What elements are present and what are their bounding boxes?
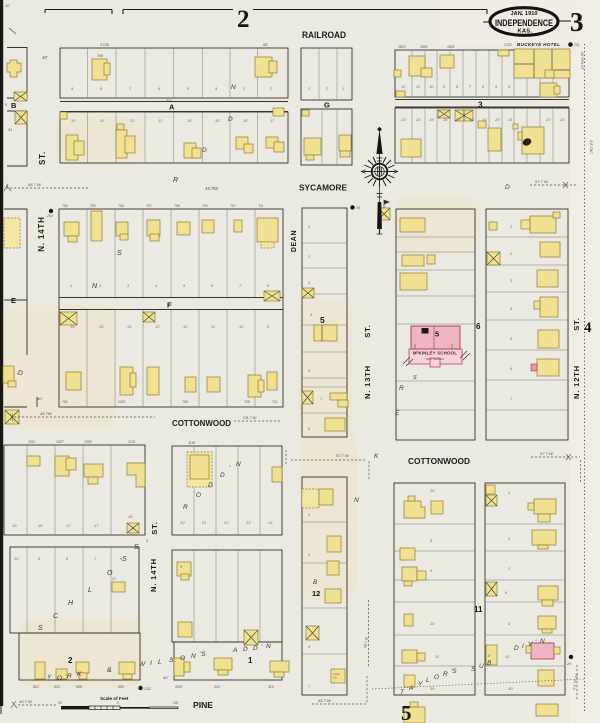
svg-text:13: 13 [401,117,406,122]
svg-text:ST.: ST. [150,521,159,534]
svg-text:R: R [173,177,178,184]
svg-text:D: D [228,116,233,123]
svg-text:6: 6 [5,103,7,107]
svg-text:R: R [183,504,188,511]
svg-text:'S: 'S [200,651,206,658]
svg-text:6: 6 [476,322,481,331]
svg-text:314: 314 [214,685,220,689]
svg-text:310: 310 [268,685,274,689]
svg-text:700: 700 [62,204,68,208]
svg-text:1726: 1726 [100,42,110,47]
svg-text:704: 704 [118,204,124,208]
svg-text:D: D [220,472,225,479]
svg-text:30: 30 [508,686,513,691]
svg-text:1100: 1100 [175,685,182,689]
svg-text:16: 16 [243,118,248,123]
svg-text:13: 13 [155,324,160,329]
svg-text:1: 1 [70,283,72,288]
svg-text:24: 24 [566,662,571,666]
svg-text:41: 41 [8,128,12,132]
svg-text:23: 23 [245,520,251,525]
svg-text:18: 18 [38,523,43,528]
svg-text:21: 21 [507,117,512,122]
svg-text:KAS.: KAS. [518,29,533,35]
svg-text:2K 9TH ST: 2K 9TH ST [580,51,584,71]
svg-text:L: L [158,659,162,666]
svg-text:15: 15 [99,324,104,329]
svg-text:11: 11 [100,118,104,123]
svg-text:709: 709 [97,54,103,58]
svg-text:11: 11 [416,84,420,89]
svg-text:1802: 1802 [447,45,455,49]
svg-text:5: 5 [435,330,439,339]
svg-text:D: D [208,482,213,489]
svg-text:24: 24 [267,520,273,525]
svg-text:11: 11 [211,324,215,329]
svg-text:1221: 1221 [128,440,136,444]
svg-text:17: 17 [456,117,461,122]
svg-text:A: A [232,647,237,654]
svg-text:2: 2 [68,656,73,665]
svg-text:705: 705 [182,400,188,404]
svg-text:L: L [426,677,430,684]
svg-text:10: 10 [239,324,244,329]
svg-text:S: S [413,375,417,381]
svg-text:N: N [540,638,545,645]
svg-text:O: O [180,655,185,662]
svg-text:S: S [38,625,43,632]
svg-text:900: 900 [118,685,124,689]
svg-text:C8.7 W.: C8.7 W. [243,415,258,420]
svg-text:45.7 W.: 45.7 W. [318,698,332,703]
svg-text:10: 10 [429,84,434,89]
svg-text:D: D [505,184,510,191]
svg-text:22: 22 [223,520,229,525]
svg-text:40': 40' [37,396,42,401]
svg-text:1311: 1311 [144,687,151,691]
svg-text:702: 702 [90,204,96,208]
svg-text:4: 4 [584,320,592,336]
svg-text:COAL: COAL [333,672,341,676]
svg-text:B: B [313,579,318,586]
svg-text:17: 17 [270,118,275,123]
svg-text:BR'K VENEER: BR'K VENEER [426,357,443,361]
svg-text:0: 0 [117,701,119,705]
svg-text:10: 10 [71,118,76,123]
svg-text:E: E [395,410,400,417]
svg-text:12: 12 [130,118,135,123]
svg-text:17: 17 [94,523,99,528]
svg-text:21: 21 [201,520,206,525]
svg-text:1: 1 [248,656,253,665]
svg-text:10: 10 [430,488,435,493]
svg-text:10: 10 [430,621,435,626]
svg-text:S: S [471,666,476,673]
svg-text:40': 40' [166,98,171,103]
svg-text:ST.: ST. [572,317,581,330]
svg-text:36: 36 [356,206,360,210]
svg-text:58: 58 [263,42,268,47]
svg-text:908: 908 [76,685,82,689]
svg-text:57.7 W.: 57.7 W. [336,453,350,458]
svg-text:14: 14 [127,324,132,329]
svg-text:57.7 W.: 57.7 W. [540,451,554,456]
svg-text:19: 19 [12,523,17,528]
svg-text:D: D [514,645,519,652]
svg-text:N: N [231,84,236,91]
svg-text:10: 10 [14,556,19,561]
svg-text:910: 910 [54,685,60,689]
svg-text:N: N [354,497,359,504]
svg-text:U: U [479,663,484,670]
svg-text:710: 710 [202,204,208,208]
svg-text:N: N [191,653,196,660]
svg-text:D: D [243,646,248,653]
svg-text:100: 100 [173,701,179,705]
svg-text:1810: 1810 [398,45,406,49]
svg-text:711: 711 [258,204,264,208]
svg-text:14: 14 [416,117,421,122]
svg-text:R: R [67,673,72,680]
svg-text:R: R [443,671,448,678]
svg-text:&: & [107,667,112,674]
svg-text:707: 707 [146,204,152,208]
svg-text:ST.: ST. [363,324,372,337]
svg-text:1115: 1115 [188,441,195,445]
svg-text:45.756: 45.756 [205,186,218,191]
svg-text:COTTONWOOD: COTTONWOOD [408,456,470,466]
svg-text:45.7 W.: 45.7 W. [28,182,42,187]
svg-text:R: R [399,385,404,392]
svg-text:20: 20 [179,520,185,525]
svg-text:18: 18 [128,514,133,519]
svg-text:L: L [88,587,92,594]
svg-text:I: I [150,660,152,667]
svg-text:A: A [169,103,175,112]
svg-text:BUCKEYE HOTEL: BUCKEYE HOTEL [517,42,560,47]
svg-text:5: 5 [320,315,325,325]
svg-text:17: 17 [66,523,71,528]
svg-text:I: I [522,643,524,650]
svg-text:15: 15 [429,117,434,122]
svg-text:RAILROAD: RAILROAD [302,30,346,40]
svg-text:SYCAMORE: SYCAMORE [299,183,347,193]
svg-text:23: 23 [545,117,551,122]
svg-text:12: 12 [312,589,320,598]
svg-text:HO.: HO. [333,676,338,680]
svg-text:N: N [236,461,241,468]
svg-text:18: 18 [469,117,474,122]
svg-text:Y: Y [47,674,52,681]
svg-text:S: S [122,556,127,563]
svg-text:'S: 'S [451,668,457,675]
svg-text:PINE: PINE [193,700,213,710]
svg-text:COTTONWOOD: COTTONWOOD [172,418,231,428]
svg-text:O: O [196,492,201,499]
svg-text:11: 11 [435,654,439,659]
svg-text:K: K [374,453,379,460]
svg-text:D: D [253,645,258,652]
svg-text:20: 20 [494,117,500,122]
svg-text:57.7 W.: 57.7 W. [535,179,549,184]
svg-text:1307: 1307 [118,400,126,404]
svg-text:3: 3 [570,7,584,37]
svg-text:13: 13 [158,118,163,123]
svg-text:S: S [169,657,174,664]
svg-text:A: A [408,685,413,692]
svg-text:W: W [139,661,146,668]
svg-text:1303: 1303 [84,440,92,444]
svg-text:10: 10 [505,654,510,659]
svg-text:Scale of Feet: Scale of Feet [100,696,129,701]
svg-text:30: 30 [430,686,435,691]
svg-text:204: 204 [46,214,53,218]
svg-text:201: 201 [573,43,580,47]
svg-text:12: 12 [401,84,406,89]
svg-text:F: F [167,301,172,310]
svg-text:1720: 1720 [504,43,512,47]
svg-text:27: 27 [111,577,116,581]
svg-text:11: 11 [474,605,483,614]
svg-text:DEAN: DEAN [291,230,298,252]
svg-text:24: 24 [559,117,565,122]
svg-text:1307: 1307 [56,440,64,444]
svg-text:B: B [11,101,17,110]
svg-text:ST.: ST. [38,151,47,165]
svg-text:1: 1 [510,224,512,229]
svg-text:K: K [77,671,82,678]
svg-text:O: O [57,675,62,682]
svg-text:14: 14 [187,118,192,123]
svg-text:711: 711 [272,400,278,404]
svg-text:2: 2 [237,6,250,33]
svg-text:1: 1 [508,490,510,495]
svg-text:JAN. 1910: JAN. 1910 [511,11,538,17]
svg-text:1311: 1311 [28,440,35,444]
svg-text:N. 14TH: N. 14TH [149,558,158,592]
svg-text:1806: 1806 [420,45,428,49]
svg-text:48.7W: 48.7W [40,411,53,416]
svg-text:60': 60' [163,675,168,680]
svg-text:707: 707 [230,204,236,208]
svg-text:50: 50 [58,701,62,705]
svg-text:5: 5 [401,701,412,723]
svg-text:N. 13TH: N. 13TH [363,365,372,399]
svg-text:V: V [528,641,533,648]
svg-text:INDEPENDENCE: INDEPENDENCE [495,18,553,28]
svg-text:15: 15 [215,118,220,123]
svg-text:S: S [117,250,122,257]
svg-text:G: G [324,101,330,110]
svg-text:40': 40' [42,55,48,60]
svg-text:B: B [487,660,492,667]
svg-text:45.7 W.: 45.7 W. [19,699,33,704]
svg-text:12: 12 [183,324,188,329]
svg-text:N: N [266,643,271,650]
svg-text:N. 12TH: N. 12TH [572,365,581,399]
svg-text:708: 708 [174,204,180,208]
svg-text:S.E.TAC.: S.E.TAC. [589,140,593,155]
svg-text:709: 709 [244,400,250,404]
svg-text:912: 912 [33,685,39,689]
svg-text:O: O [434,674,439,681]
svg-text:S: S [134,544,139,551]
svg-text:1: 1 [308,224,310,229]
svg-text:E: E [11,296,16,305]
svg-text:701: 701 [62,400,68,404]
svg-text:N. 14TH: N. 14TH [37,216,46,251]
svg-text:1: 1 [342,86,344,91]
svg-text:8: 8 [488,654,490,658]
svg-text:O: O [107,570,113,577]
svg-text:MʰKINLEY SCHOOL: MʰKINLEY SCHOOL [413,351,457,356]
svg-text:19: 19 [482,117,487,122]
svg-text:10: 10 [5,3,10,8]
svg-text:16: 16 [70,324,75,329]
svg-text:16: 16 [443,117,448,122]
